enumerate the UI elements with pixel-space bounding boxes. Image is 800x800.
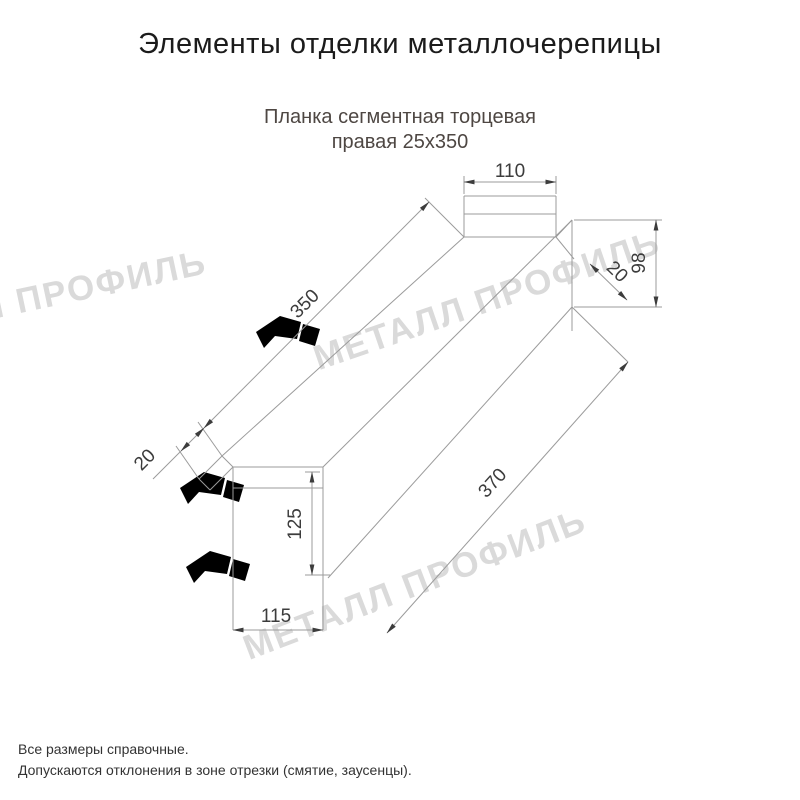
part-outline [199,196,628,630]
dimension-370: 370 [387,362,628,633]
watermark-logo-icon [180,316,320,583]
dim-label-370: 370 [475,465,512,503]
dim-label-125: 125 [285,508,306,540]
dimension-115: 115 [233,606,323,630]
dimension-20-right: 20 [590,257,632,300]
dim-label-20-left: 20 [130,445,160,475]
dimension-350: 350 [198,198,464,456]
dimension-110: 110 [464,161,556,194]
dim-label-98: 98 [629,252,650,273]
technical-drawing: 110 98 20 350 20 125 370 11 [0,0,800,800]
dim-label-115: 115 [261,606,291,627]
dim-label-20-right: 20 [602,257,632,287]
dim-label-110: 110 [495,161,525,182]
dimension-20-left: 20 [130,428,204,479]
dim-label-350: 350 [286,285,323,322]
